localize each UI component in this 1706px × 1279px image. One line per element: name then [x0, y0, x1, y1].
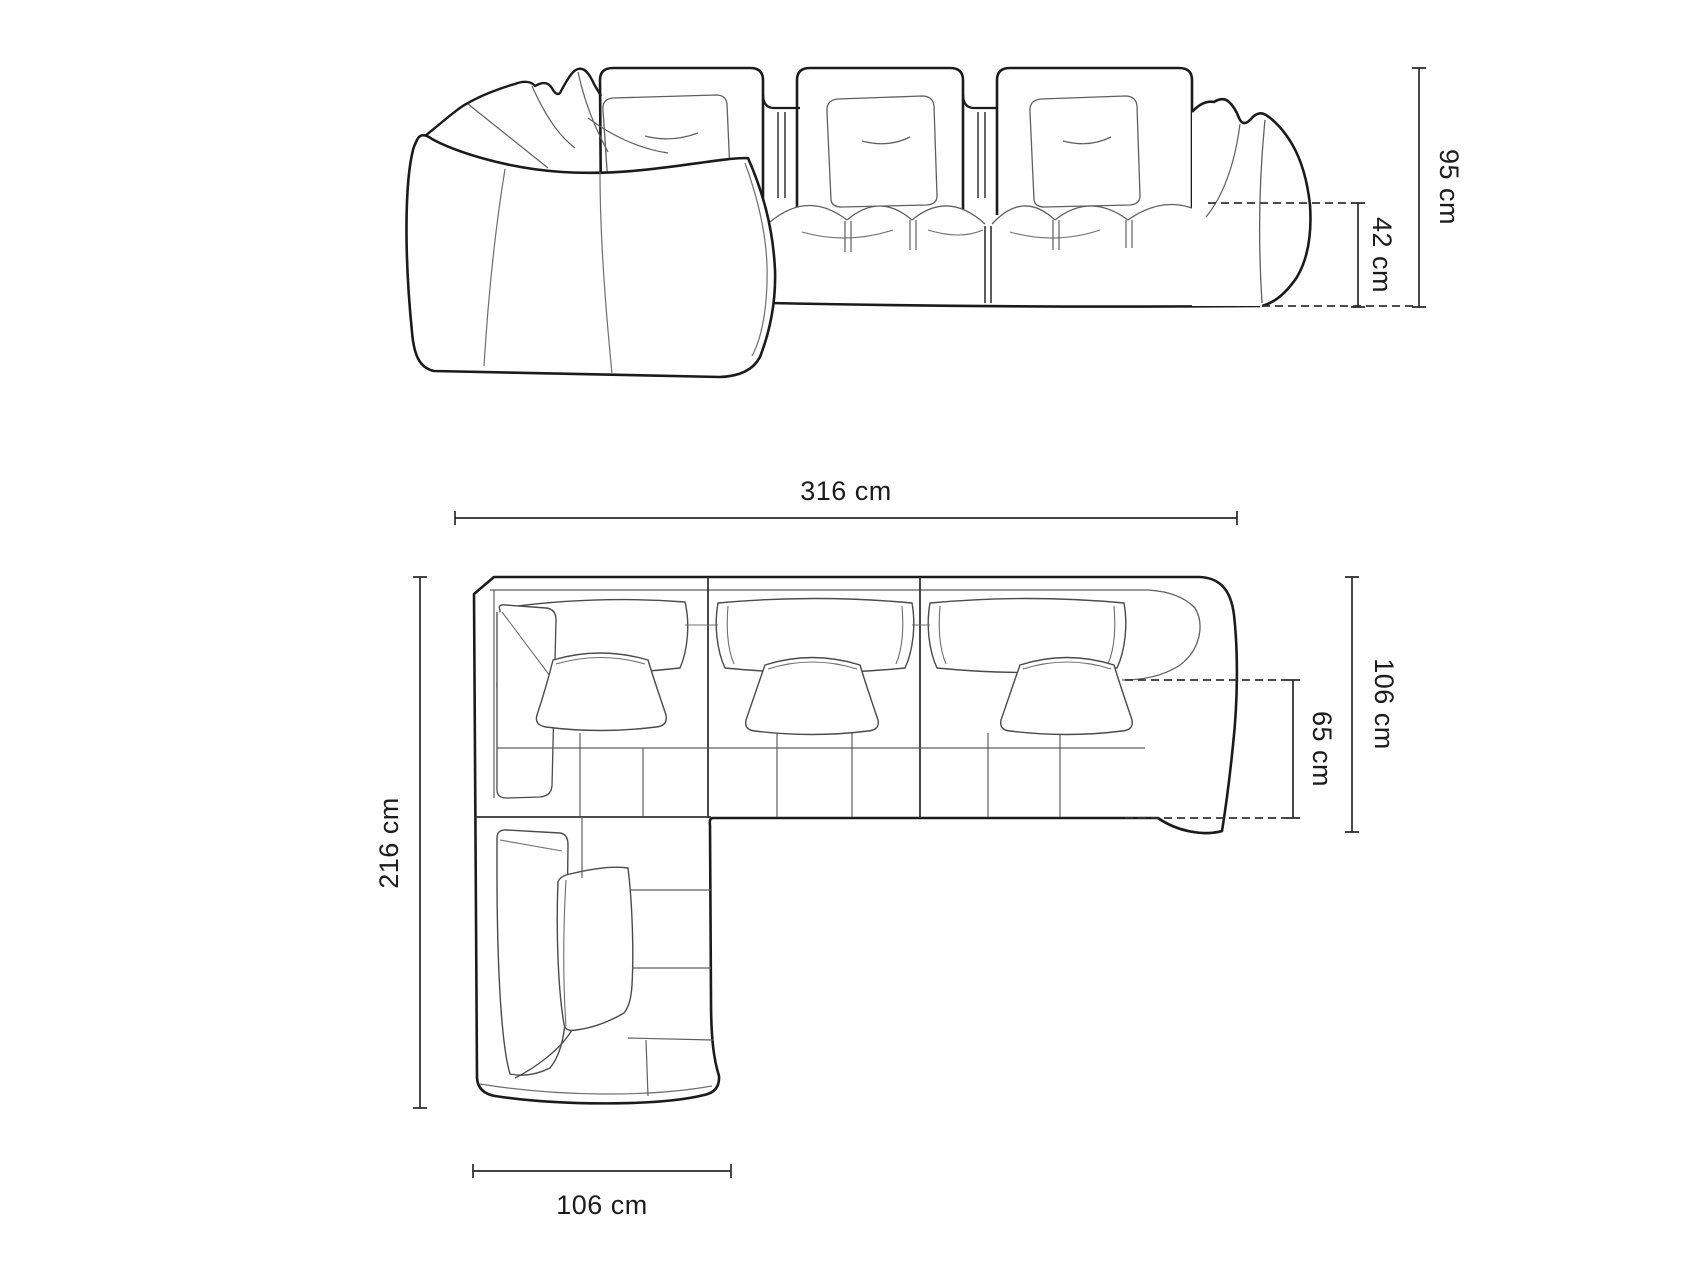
front-module-seam-1-stitching [778, 112, 785, 198]
dimension-seat-height: 42 cm [1351, 203, 1397, 307]
dimension-seat-depth-label: 65 cm [1307, 711, 1337, 787]
plan-corner-pillow [536, 653, 666, 731]
dimension-total-height: 95 cm [1412, 68, 1464, 307]
front-corner-pillow-skyline [425, 69, 601, 136]
front-module-seam-2-stitching [978, 112, 985, 198]
front-elevation-view: 95 cm 42 cm [406, 68, 1464, 377]
front-corner-module-body [406, 135, 775, 377]
dimension-chaise-length: 216 cm [374, 577, 427, 1108]
dimension-chaise-width-label: 106 cm [556, 1190, 648, 1220]
top-plan-view: 316 cm 106 cm 65 cm 216 cm 106 cm [374, 476, 1399, 1220]
dimension-seat-depth: 65 cm [1286, 680, 1337, 818]
technical-drawing-canvas: 95 cm 42 cm [0, 0, 1706, 1279]
front-back-cushion-2 [827, 96, 937, 207]
front-seat-band [770, 204, 1203, 306]
dimension-total-width-label: 316 cm [800, 476, 892, 506]
dimension-seat-height-label: 42 cm [1367, 217, 1397, 293]
dimension-chaise-width: 106 cm [473, 1164, 731, 1220]
dimension-total-depth-label: 106 cm [1369, 658, 1399, 750]
front-module-seam-2 [963, 94, 997, 108]
front-module-seam-1 [763, 94, 800, 108]
sofa-dimension-diagram: 95 cm 42 cm [0, 0, 1706, 1279]
front-back-cushion-3 [1030, 96, 1140, 207]
dimension-total-depth: 106 cm [1345, 577, 1399, 832]
plan-pillow-2 [746, 658, 879, 735]
dimension-total-height-label: 95 cm [1434, 149, 1464, 225]
dimension-chaise-length-label: 216 cm [374, 797, 404, 889]
plan-pillow-3 [1001, 658, 1133, 735]
dimension-total-width: 316 cm [455, 476, 1237, 525]
plan-chaise-pillow [557, 867, 633, 1030]
